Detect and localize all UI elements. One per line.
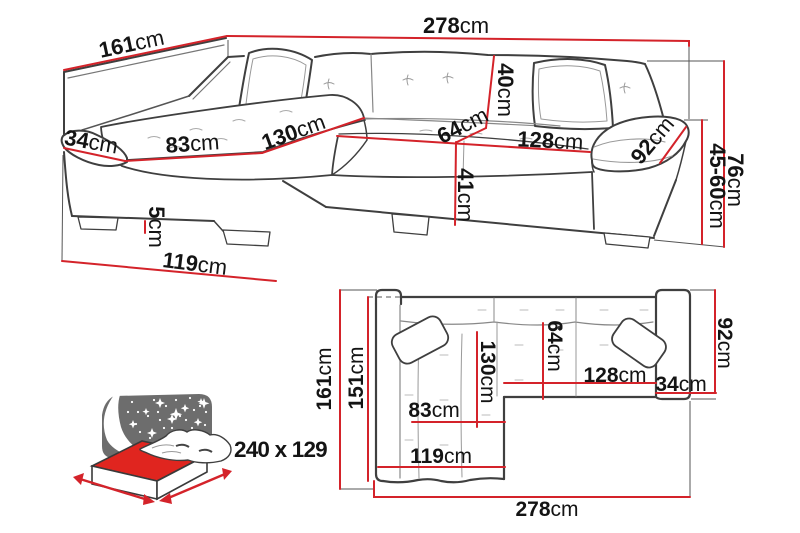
svg-text:130cm: 130cm: [476, 340, 499, 403]
svg-text:92cm: 92cm: [713, 317, 736, 368]
svg-text:128cm: 128cm: [517, 126, 584, 154]
svg-text:278cm: 278cm: [515, 498, 578, 521]
svg-text:5cm: 5cm: [144, 206, 169, 248]
svg-text:119cm: 119cm: [410, 445, 472, 468]
svg-text:34cm: 34cm: [655, 373, 706, 396]
svg-text:278cm: 278cm: [423, 13, 489, 38]
svg-text:161cm: 161cm: [313, 347, 336, 410]
svg-text:64cm: 64cm: [543, 320, 566, 371]
svg-text:83cm: 83cm: [165, 129, 220, 158]
svg-text:83cm: 83cm: [408, 399, 459, 422]
svg-text:128cm: 128cm: [583, 364, 646, 387]
svg-text:41cm: 41cm: [453, 168, 478, 222]
svg-text:45-60cm: 45-60cm: [705, 143, 730, 229]
svg-text:151cm: 151cm: [345, 346, 368, 409]
svg-text:40cm: 40cm: [493, 63, 518, 117]
svg-text:240 x 129: 240 x 129: [234, 437, 327, 462]
